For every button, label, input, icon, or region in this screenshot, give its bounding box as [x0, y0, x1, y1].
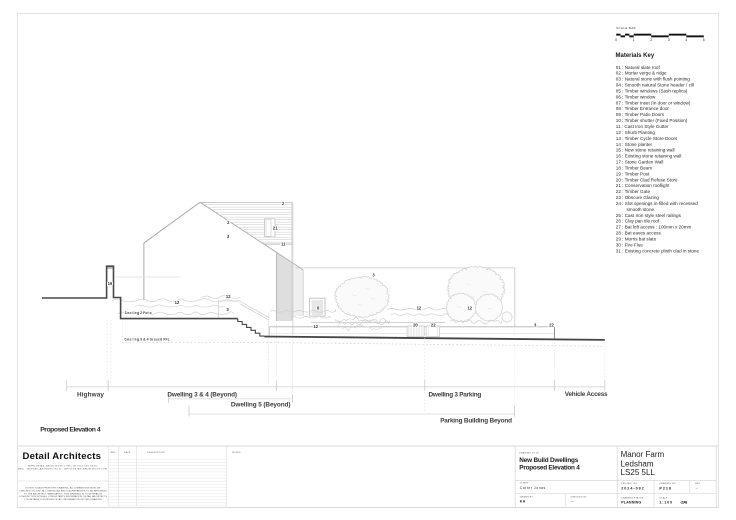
svg-text:Ledsham: Ledsham	[621, 459, 654, 468]
svg-text:Dwelling 2 Patio: Dwelling 2 Patio	[125, 311, 152, 315]
svg-text:12: 12	[467, 306, 472, 311]
svg-text:08 : Timber Entrance door: 08 : Timber Entrance door	[616, 106, 670, 111]
svg-text:DRAWING TITLE: DRAWING TITLE	[519, 451, 539, 454]
svg-text:@A3: @A3	[681, 501, 688, 505]
svg-text:Highway: Highway	[77, 391, 104, 398]
svg-text:22: 22	[431, 322, 436, 327]
svg-text:11: 11	[281, 241, 286, 246]
svg-text:Dwelling 5 (Beyond): Dwelling 5 (Beyond)	[231, 401, 291, 408]
svg-text:20 : Timber Clad Refuse Store: 20 : Timber Clad Refuse Store	[616, 177, 678, 182]
svg-text:Dwelling 3 & 4 (Beyond): Dwelling 3 & 4 (Beyond)	[167, 391, 237, 398]
svg-text:2: 2	[227, 220, 230, 225]
svg-text:2: 2	[282, 201, 285, 206]
svg-text:--: --	[696, 486, 698, 490]
svg-text:22 : Timber Gate: 22 : Timber Gate	[616, 189, 651, 194]
svg-text:1:100: 1:100	[659, 501, 672, 505]
svg-text:06 : Timber window: 06 : Timber window	[616, 94, 656, 99]
svg-text:31 : Existing concrete plinth: 31 : Existing concrete plinth clad in st…	[616, 248, 700, 253]
svg-text:03 : Natural stone with flush: 03 : Natural stone with flush pointing	[616, 77, 690, 82]
svg-text:CHECKED ON SITE. ALL OMISSIONS: CHECKED ON SITE. ALL OMISSIONS AND DISCR…	[19, 489, 107, 492]
svg-text:Proposed Elevation 4: Proposed Elevation 4	[519, 464, 580, 471]
svg-text:11 : Cast Iron Style Gutter: 11 : Cast Iron Style Gutter	[616, 124, 669, 129]
svg-text:LS25 5LL: LS25 5LL	[621, 468, 656, 477]
svg-text:12: 12	[417, 306, 422, 311]
svg-text:12: 12	[175, 300, 180, 305]
svg-text:2: 2	[650, 38, 652, 42]
svg-text:15 : New stone retaining wall: 15 : New stone retaining wall	[616, 148, 675, 153]
svg-text:---: ---	[571, 499, 574, 503]
svg-text:DESCRIPTION: DESCRIPTION	[147, 452, 164, 454]
svg-text:Detail Architects: Detail Architects	[23, 451, 102, 462]
svg-text:28 : Bat eaves access: 28 : Bat eaves access	[616, 231, 662, 236]
svg-text:3: 3	[226, 307, 229, 312]
svg-text:3: 3	[372, 273, 375, 278]
svg-text:KA: KA	[520, 499, 526, 503]
svg-text:24 : Slot openings in-filled w: 24 : Slot openings in-filled with recess…	[616, 201, 698, 206]
svg-text:0: 0	[615, 38, 617, 42]
svg-text:10 : Timber shutter (Fixed Pos: 10 : Timber shutter (Fixed Position)	[616, 118, 688, 123]
svg-text:NOTES :: NOTES :	[232, 452, 242, 454]
svg-text:PROJECT NO.: PROJECT NO.	[621, 483, 638, 485]
svg-text:3: 3	[227, 234, 230, 239]
svg-text:DRAWN BY: DRAWN BY	[520, 495, 534, 498]
svg-text:25 : Cast Iron style steel rai: 25 : Cast Iron style steel railings	[616, 213, 682, 218]
svg-text:LTD RETAINS COPYRIGHT OF ALL I: LTD RETAINS COPYRIGHT OF ALL INFORMATION…	[24, 498, 102, 501]
svg-text:CHECKED BY: CHECKED BY	[571, 496, 588, 498]
svg-text:CONJUNCTION WITH ALL CONSULTAN: CONJUNCTION WITH ALL CONSULTANTS INFORMA…	[19, 495, 108, 498]
svg-text:01 : Natural slate roof: 01 : Natural slate roof	[616, 65, 661, 70]
svg-text:12 : Shurb Planting: 12 : Shurb Planting	[616, 130, 656, 135]
svg-text:SCALE BAR: SCALE BAR	[616, 26, 636, 30]
svg-text:smooth stone.: smooth stone.	[627, 207, 656, 212]
svg-text:4: 4	[685, 38, 687, 42]
svg-text:DRAWING STATUS: DRAWING STATUS	[621, 497, 644, 500]
svg-text:02 : Mortar verge & ridge: 02 : Mortar verge & ridge	[616, 71, 667, 76]
svg-text:13 : Timber Cycle Store Doors: 13 : Timber Cycle Store Doors	[616, 136, 678, 141]
svg-text:SCALE: SCALE	[659, 497, 668, 500]
svg-text:18 : Timber Beam: 18 : Timber Beam	[616, 165, 652, 170]
svg-text:27 : Bat loft access : 100mm x: 27 : Bat loft access : 100mm x 20mm	[616, 225, 692, 230]
svg-text:WWW.DETAIL-ARCHITECTS.COM | UK: WWW.DETAIL-ARCHITECTS.COM | UK 0113 4XX …	[28, 464, 97, 467]
svg-text:P218: P218	[659, 487, 671, 491]
svg-text:Materials Key: Materials Key	[616, 53, 655, 59]
svg-text:23 : Obscure Glazing: 23 : Obscure Glazing	[616, 195, 660, 200]
svg-text:12: 12	[226, 294, 231, 299]
svg-text:DATE: DATE	[124, 451, 131, 454]
svg-text:07 : Timber inset (In door or: 07 : Timber inset (In door or window)	[616, 100, 691, 105]
svg-text:05 : Timber windows (Sash repl: 05 : Timber windows (Sash replica)	[616, 89, 688, 94]
svg-text:14 : Stone planter: 14 : Stone planter	[616, 142, 653, 147]
svg-text:CLIENT: CLIENT	[520, 482, 529, 484]
svg-text:Carter Jonas: Carter Jonas	[520, 486, 546, 490]
svg-text:09 : Timber Patio Doors: 09 : Timber Patio Doors	[616, 112, 665, 117]
svg-text:30 : Fire Flue: 30 : Fire Flue	[616, 242, 644, 247]
svg-text:PLANNING: PLANNING	[621, 501, 641, 505]
svg-text:16 : Existing stone retaining: 16 : Existing stone retaining wall	[616, 154, 682, 159]
svg-text:Dwelling 3 Parking: Dwelling 3 Parking	[429, 391, 482, 398]
svg-text:21 : Conservation rooflight: 21 : Conservation rooflight	[616, 183, 670, 188]
svg-text:New Build Dwellings: New Build Dwellings	[519, 457, 578, 464]
svg-text:5: 5	[703, 38, 705, 42]
svg-text:20: 20	[413, 322, 418, 327]
svg-text:Dwelling 3 & 4 Ground FFL: Dwelling 3 & 4 Ground FFL	[125, 337, 170, 341]
svg-text:22: 22	[549, 322, 554, 327]
svg-text:DO NOT SCALE FROM THIS DRAWING: DO NOT SCALE FROM THIS DRAWING. ALL DIME…	[25, 486, 100, 489]
svg-text:16: 16	[108, 281, 113, 286]
svg-text:3: 3	[668, 38, 670, 42]
svg-text:12: 12	[313, 324, 318, 329]
svg-text:17 : Stone Garden Wall: 17 : Stone Garden Wall	[616, 160, 664, 165]
svg-text:Parking Building Beyond: Parking Building Beyond	[440, 417, 512, 424]
svg-text:04 : Smooth natural Stone head: 04 : Smooth natural Stone header / cill	[616, 83, 694, 88]
svg-text:MAIL : @DETAIL-ARCHITECTS | E: MAIL : @DETAIL-ARCHITECTS | E : INFO@DET…	[18, 468, 107, 471]
svg-text:29 : Morris bat slate: 29 : Morris bat slate	[616, 237, 657, 242]
svg-text:Proposed Elevation 4: Proposed Elevation 4	[40, 426, 101, 433]
svg-text:REV: REV	[695, 483, 700, 485]
svg-text:19 : Timber Post: 19 : Timber Post	[616, 171, 650, 176]
svg-text:DRAWING NO.: DRAWING NO.	[659, 482, 676, 485]
svg-text:Manor Farm: Manor Farm	[621, 450, 665, 459]
svg-text:REV: REV	[111, 452, 116, 454]
svg-text:Vehicle Access: Vehicle Access	[565, 391, 608, 398]
svg-text:1: 1	[633, 38, 635, 42]
svg-text:2024-082: 2024-082	[621, 487, 644, 491]
svg-text:26 : Clay pan tile roof: 26 : Clay pan tile roof	[616, 219, 660, 224]
svg-text:21: 21	[273, 225, 278, 230]
svg-text:TO THE ARCHITECT IMMEDIATELY.: TO THE ARCHITECT IMMEDIATELY. THIS DRAWI…	[24, 492, 102, 495]
